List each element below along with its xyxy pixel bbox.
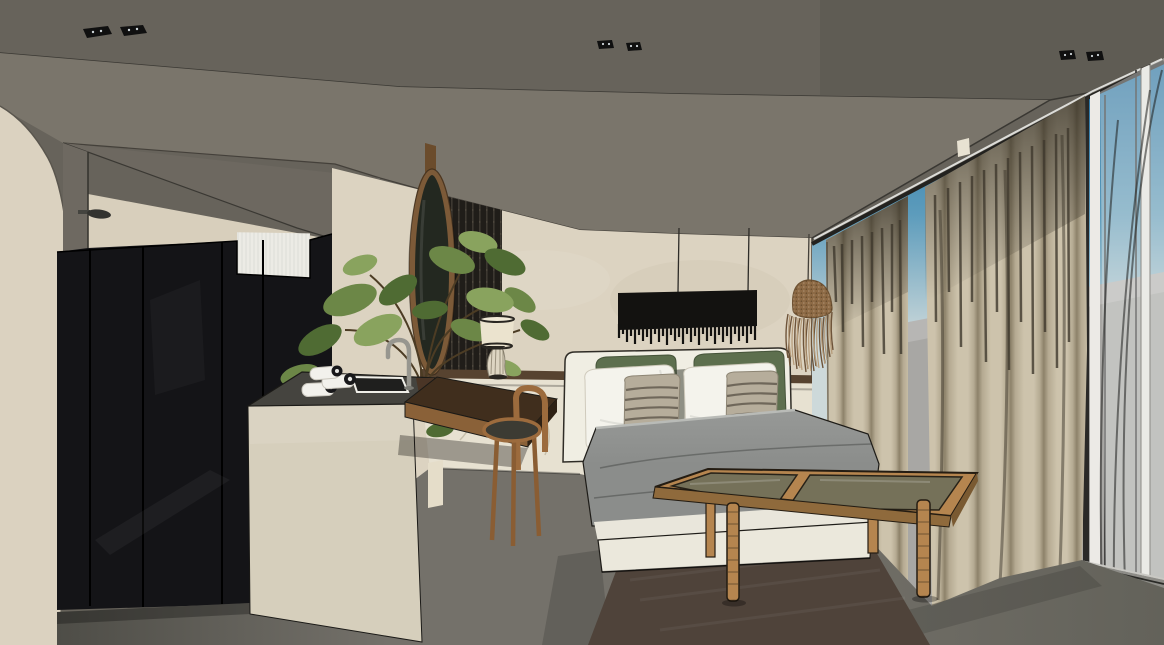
interior-render	[0, 0, 1164, 645]
lamp-shade-top	[480, 316, 514, 322]
stool-seat	[484, 419, 540, 441]
window-mullion	[1090, 91, 1100, 624]
spotlight-icon	[626, 42, 642, 51]
leg-shadow	[912, 596, 938, 603]
glass-reflection	[150, 280, 205, 395]
sink-basin	[352, 377, 408, 392]
arched-wall	[0, 106, 66, 645]
island-top-gradient	[248, 403, 414, 444]
curtain-bracket	[957, 138, 970, 157]
render-viewport	[0, 0, 1164, 645]
spotlight-icon	[1059, 50, 1076, 60]
spotlight-icon	[597, 40, 614, 49]
leg-shadow	[722, 600, 746, 607]
sheer-curtain-right	[1100, 58, 1164, 640]
spotlight-icon	[1086, 51, 1104, 61]
under-desk-panel	[428, 460, 443, 508]
lamp-base-foot	[489, 375, 507, 380]
lamp-shade	[480, 319, 514, 346]
